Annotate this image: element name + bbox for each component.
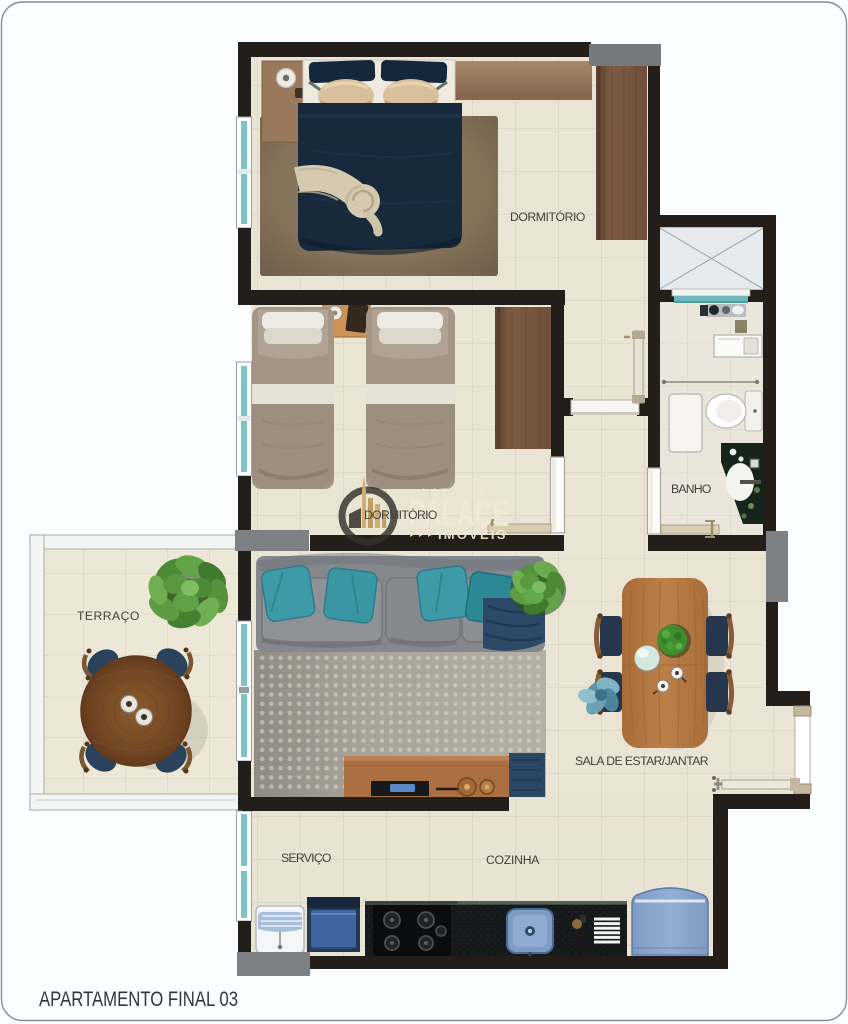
svg-text:DORMITÓRIO: DORMITÓRIO (364, 507, 438, 522)
svg-text:BANHO: BANHO (671, 482, 712, 496)
svg-text:COZINHA: COZINHA (486, 853, 540, 867)
svg-text:SERVIÇO: SERVIÇO (281, 851, 332, 865)
svg-text:APARTAMENTO FINAL 03: APARTAMENTO FINAL 03 (39, 988, 238, 1011)
svg-text:SALA DE ESTAR/JANTAR: SALA DE ESTAR/JANTAR (575, 754, 709, 768)
svg-text:TERRAÇO: TERRAÇO (77, 609, 140, 623)
svg-text:IMÓVEIS: IMÓVEIS (438, 527, 508, 542)
svg-text:DORMITÓRIO: DORMITÓRIO (510, 209, 586, 224)
